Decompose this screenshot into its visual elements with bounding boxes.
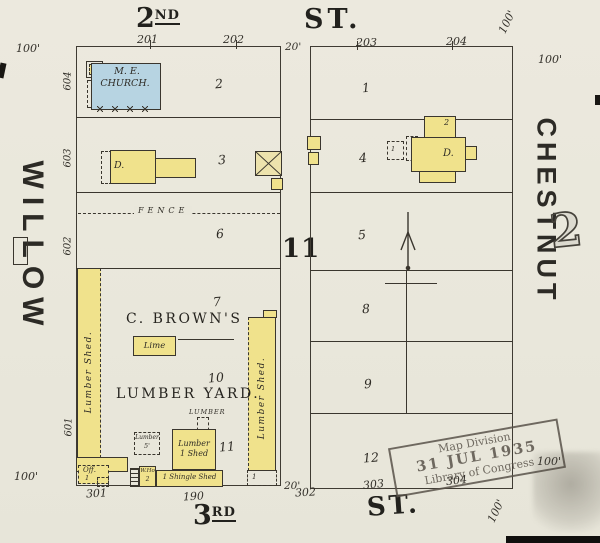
warehouse-stairs: [130, 468, 139, 487]
office-story-label: 1: [85, 474, 89, 482]
lot4-dwelling-main: [411, 137, 466, 172]
lumber-shed-west-label: Lumber Shed.: [84, 331, 94, 413]
church-porch-mark: [97, 106, 103, 112]
street-2nd-numeral: 2: [136, 3, 155, 34]
depth-label-100-top-right-rotated: 100': [496, 8, 518, 35]
depth-label-100-bottom-right-rotated: 100': [485, 497, 507, 524]
scan-smudge: [533, 452, 600, 532]
right-block-lot-line-5: [310, 413, 513, 414]
dwelling-label: D.: [114, 160, 124, 171]
office-dashed-annex: [97, 477, 109, 487]
street-name-2nd: 2ND: [136, 3, 180, 34]
owner-business: LUMBER YARD.: [116, 386, 252, 402]
depth-label-100-top-right: 100': [538, 53, 562, 66]
lot-number-1: 1: [361, 80, 370, 96]
lot-number-4: 4: [358, 150, 367, 166]
owner-name: C. BROWN'S: [126, 311, 238, 327]
yard-one-mark: 1: [252, 473, 256, 481]
street-3rd-ordinal: RD: [212, 505, 236, 522]
church-porch-mark: [142, 106, 148, 112]
lot4-dashed-structure-1: [387, 141, 404, 160]
house-number-602: 602: [63, 236, 74, 255]
lot-number-8: 8: [361, 301, 370, 317]
lime-house-label: Lime: [133, 341, 176, 351]
lumber-shed-square-label-1: Lumber: [172, 439, 216, 448]
lumber-shed-square-label-2: 1 Shed: [172, 449, 216, 458]
church-label-line1: M. E.: [96, 66, 158, 77]
lot-number-7: 7: [212, 294, 221, 310]
church-porch-mark: [112, 106, 118, 112]
lot4-dwelling-story: 2: [444, 118, 449, 127]
house-number-301: 301: [86, 486, 108, 500]
office-label: Off.: [83, 466, 96, 474]
scan-edge-mark-left: [0, 63, 6, 79]
lumber-shed-east-notch: [263, 310, 277, 318]
house-number-601: 601: [64, 417, 75, 436]
lot4-dashed-one-mark: 1: [391, 145, 395, 153]
left-block-lot-line-1: [76, 117, 281, 118]
depth-label-100-bottom-left: 100': [14, 470, 38, 483]
plate-number: 2: [547, 201, 584, 258]
lot-number-11: 11: [218, 438, 235, 454]
lot4-dwelling-south-wing: [419, 171, 456, 183]
house-number-190: 190: [183, 489, 205, 503]
lumber-5-label-1: Lumber: [134, 434, 160, 441]
right-block-lot-line-1: [310, 119, 513, 120]
right-block-lot-line-2: [310, 192, 513, 193]
right-block-center-tick: [385, 283, 437, 284]
house-number-302: 302: [295, 485, 317, 499]
warehouse-label: W.Ho: [139, 468, 156, 474]
street-3rd-numeral: 3: [193, 500, 212, 531]
lot4-dwelling-porch: [465, 146, 477, 160]
house-number-604: 604: [63, 71, 74, 90]
depth-label-100-top-left: 100': [16, 42, 40, 55]
house-number-202: 202: [223, 33, 244, 46]
alley-width-top: 20': [285, 41, 301, 53]
lumber-pile-label: Lumber: [189, 408, 226, 416]
fence-label: FENCE: [134, 206, 192, 215]
warehouse-story-label: 2: [139, 476, 156, 483]
left-block-lot-line-3: [76, 268, 281, 269]
lot4-outbuilding-2: [308, 152, 319, 165]
house-number-303: 303: [362, 477, 384, 492]
barn-x-mark: [256, 152, 281, 175]
lot4-dwelling-label: D.: [443, 148, 454, 159]
right-block-lot-line-4: [310, 341, 513, 342]
right-block-center-line: [406, 270, 407, 413]
barn-outbuilding: [271, 178, 283, 190]
lot-number-3: 3: [217, 152, 226, 168]
scan-edge-mark-right: [595, 95, 600, 105]
lot-number-6: 6: [215, 226, 224, 242]
willow-street-symbol: [13, 237, 28, 265]
house-number-203: 203: [356, 36, 377, 49]
church-porch-mark: [127, 106, 133, 112]
barn-crossed: [255, 151, 282, 176]
lot-number-2: 2: [214, 76, 223, 92]
scan-corner-bar: [506, 536, 600, 543]
left-block-lot-line-2: [76, 192, 281, 193]
street-2nd-ordinal: ND: [155, 8, 180, 25]
lot-number-12: 12: [362, 449, 379, 465]
dwelling-wing: [155, 158, 196, 178]
north-arrow: [398, 208, 418, 274]
lot-number-10: 10: [207, 369, 224, 385]
lot-number-5: 5: [357, 227, 366, 243]
house-number-201: 201: [137, 33, 158, 46]
street-name-3rd: 3RD: [193, 500, 236, 531]
lumber-5-label-2: 5': [134, 442, 160, 450]
house-number-204: 204: [446, 35, 467, 48]
church-side-porch: [87, 80, 92, 108]
lot-number-9: 9: [363, 376, 372, 392]
shingle-shed-label: 1 Shingle Shed: [156, 473, 223, 481]
house-number-603: 603: [63, 148, 74, 167]
street-2nd-st-label: ST.: [304, 4, 362, 35]
owner-underline-dash: [178, 339, 234, 340]
lot4-outbuilding-1: [307, 136, 321, 150]
church-label-line2: CHURCH.: [94, 78, 156, 89]
